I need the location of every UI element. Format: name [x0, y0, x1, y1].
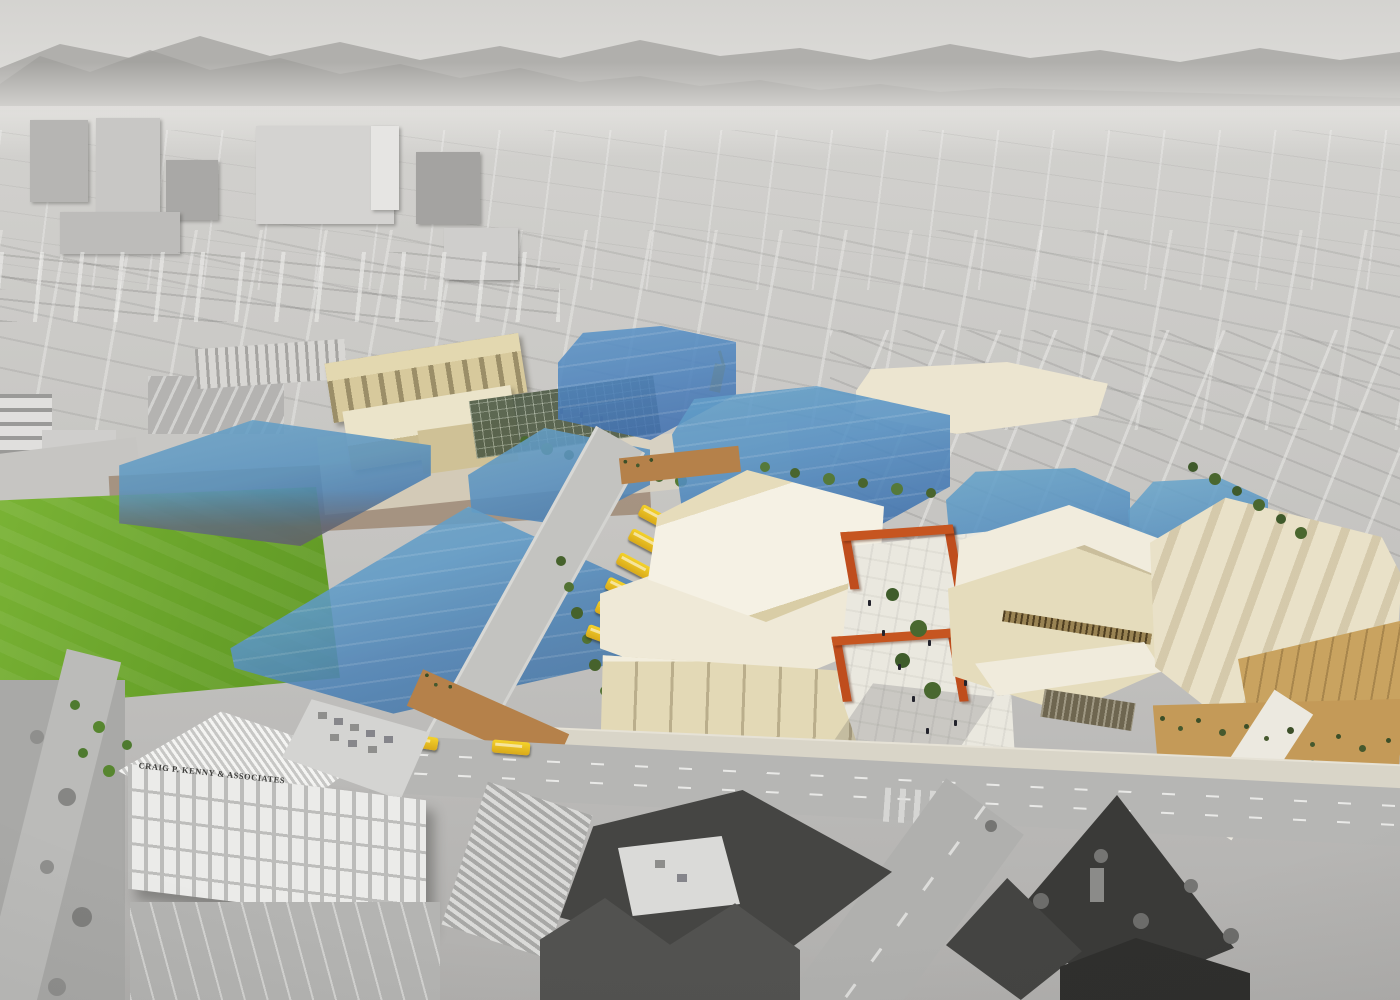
gray-palm-trees [985, 820, 997, 832]
orange-gateway-structure [840, 525, 963, 596]
field-edge-trees [70, 700, 80, 710]
downtown-lowrise-blocks [0, 252, 560, 322]
tree-row-east [1188, 462, 1198, 472]
plaza-pedestrians [868, 600, 871, 606]
midrise-building [166, 160, 218, 220]
tree-row-center [760, 462, 770, 472]
house-flat-roof-section [618, 836, 740, 916]
orange-gateway-structure [831, 628, 968, 710]
highrise-tower [30, 120, 88, 202]
office-parking-lot [130, 902, 440, 1000]
aerial-rendering: Craig P. Kenny & Associates [0, 0, 1400, 1000]
plaza-trees [886, 588, 899, 601]
dark-tower [416, 152, 480, 224]
highrise-tower [96, 118, 160, 212]
white-tower [371, 126, 399, 210]
desert-shrubs [1160, 716, 1165, 721]
street-tree-row [556, 556, 566, 566]
entrance-grille [1040, 689, 1135, 731]
lowrise-slab [60, 212, 180, 254]
chimney [1090, 868, 1104, 902]
gray-trees [30, 730, 44, 744]
rooftop-units [318, 712, 327, 719]
